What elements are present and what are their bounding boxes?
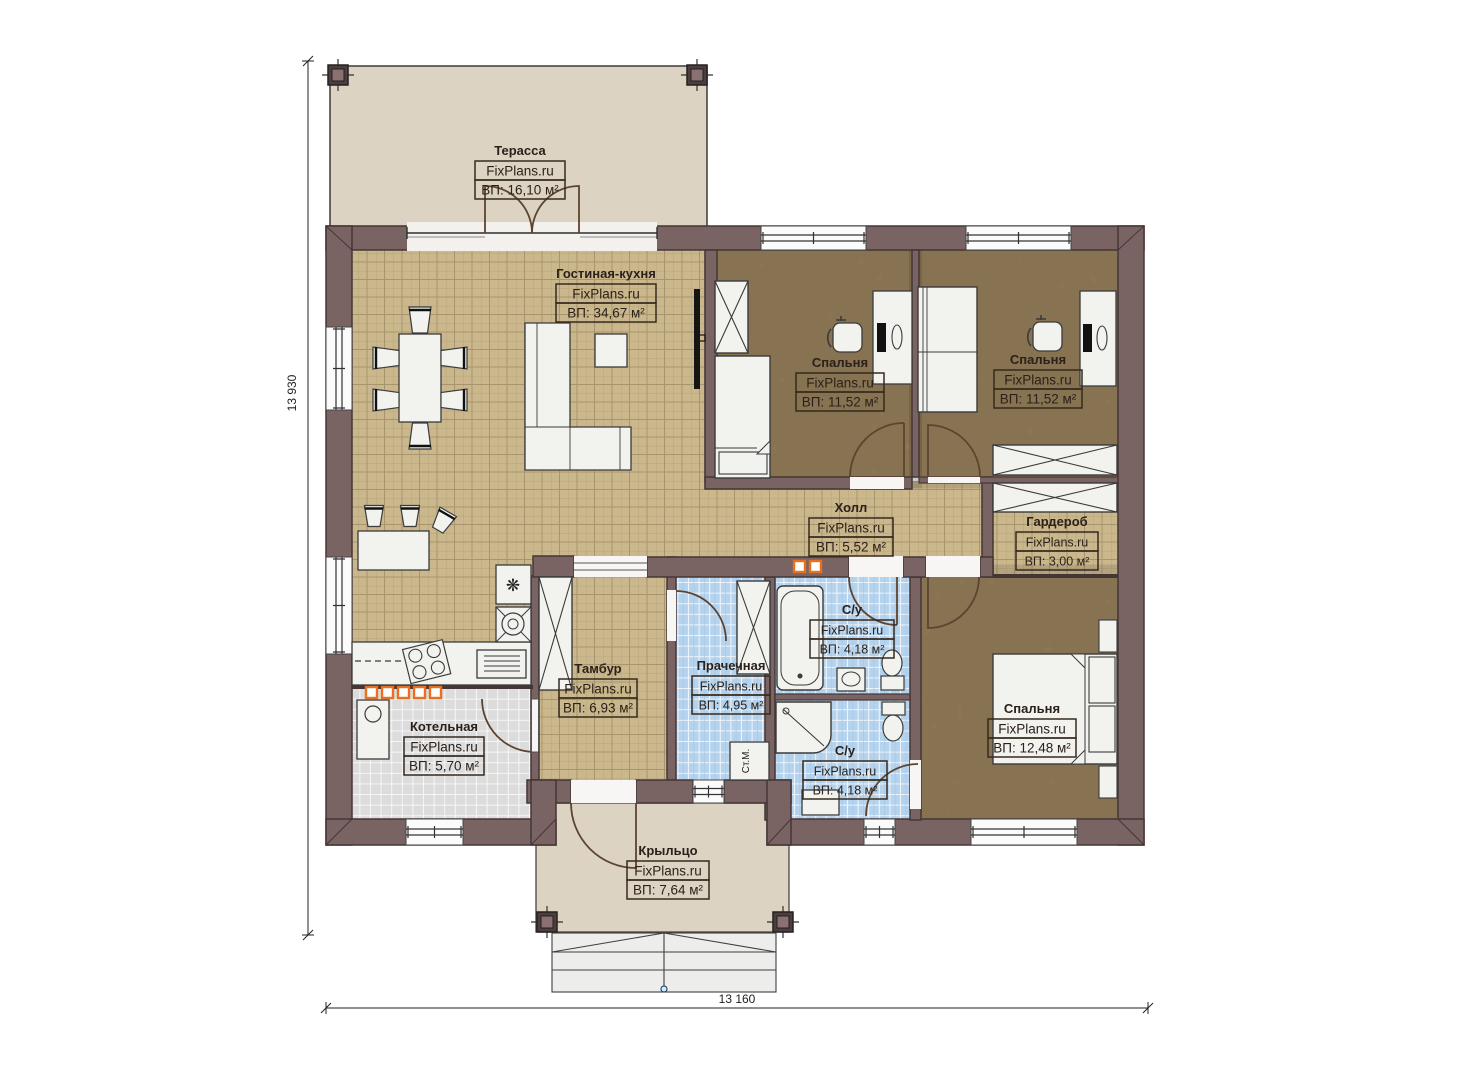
- svg-text:ВП: 12,48 м²: ВП: 12,48 м²: [993, 741, 1071, 756]
- svg-text:FixPlans.ru: FixPlans.ru: [486, 164, 554, 179]
- svg-text:Спальня: Спальня: [1010, 352, 1066, 367]
- svg-text:ВП: 6,93 м²: ВП: 6,93 м²: [563, 701, 634, 716]
- svg-text:Терасса: Терасса: [494, 143, 546, 158]
- svg-text:Крыльцо: Крыльцо: [638, 843, 697, 858]
- svg-text:ВП: 11,52 м²: ВП: 11,52 м²: [1000, 392, 1077, 407]
- svg-text:Прачечная: Прачечная: [697, 658, 766, 673]
- svg-text:Гостиная-кухня: Гостиная-кухня: [556, 266, 656, 281]
- svg-text:С/у: С/у: [835, 743, 856, 758]
- svg-text:FixPlans.ru: FixPlans.ru: [814, 765, 877, 779]
- svg-text:FixPlans.ru: FixPlans.ru: [1004, 373, 1072, 388]
- svg-text:FixPlans.ru: FixPlans.ru: [700, 680, 763, 694]
- svg-text:ВП: 11,52 м²: ВП: 11,52 м²: [802, 395, 879, 410]
- svg-text:ВП: 4,18 м²: ВП: 4,18 м²: [813, 784, 878, 798]
- svg-text:❋: ❋: [506, 576, 520, 595]
- svg-text:ВП: 4,95 м²: ВП: 4,95 м²: [699, 699, 764, 713]
- svg-text:Тамбур: Тамбур: [574, 661, 621, 676]
- svg-text:Гардероб: Гардероб: [1026, 514, 1087, 529]
- svg-text:FixPlans.ru: FixPlans.ru: [817, 521, 885, 536]
- svg-text:Холл: Холл: [835, 500, 868, 515]
- svg-text:Спальня: Спальня: [812, 355, 868, 370]
- svg-text:FixPlans.ru: FixPlans.ru: [572, 287, 640, 302]
- svg-text:ВП: 4,18 м²: ВП: 4,18 м²: [820, 643, 885, 657]
- svg-text:FixPlans.ru: FixPlans.ru: [1026, 536, 1089, 550]
- svg-text:Котельная: Котельная: [410, 719, 478, 734]
- svg-text:13 930: 13 930: [285, 374, 299, 411]
- svg-text:FixPlans.ru: FixPlans.ru: [806, 376, 874, 391]
- svg-text:ВП: 34,67 м²: ВП: 34,67 м²: [567, 306, 645, 321]
- svg-text:ВП: 5,52 м²: ВП: 5,52 м²: [816, 540, 887, 555]
- svg-text:С/у: С/у: [842, 602, 863, 617]
- svg-text:FixPlans.ru: FixPlans.ru: [998, 722, 1066, 737]
- svg-text:ВП: 5,70 м²: ВП: 5,70 м²: [409, 759, 480, 774]
- svg-text:ВП: 16,10 м²: ВП: 16,10 м²: [481, 183, 559, 198]
- svg-text:FixPlans.ru: FixPlans.ru: [634, 864, 702, 879]
- svg-text:Спальня: Спальня: [1004, 701, 1060, 716]
- svg-text:FixPlans.ru: FixPlans.ru: [564, 682, 632, 697]
- svg-text:ВП: 3,00 м²: ВП: 3,00 м²: [1025, 555, 1090, 569]
- svg-text:FixPlans.ru: FixPlans.ru: [821, 624, 884, 638]
- svg-text:ВП: 7,64 м²: ВП: 7,64 м²: [633, 883, 704, 898]
- svg-text:Ст.М.: Ст.М.: [741, 749, 752, 774]
- svg-text:FixPlans.ru: FixPlans.ru: [410, 740, 478, 755]
- svg-text:13 160: 13 160: [719, 992, 756, 1006]
